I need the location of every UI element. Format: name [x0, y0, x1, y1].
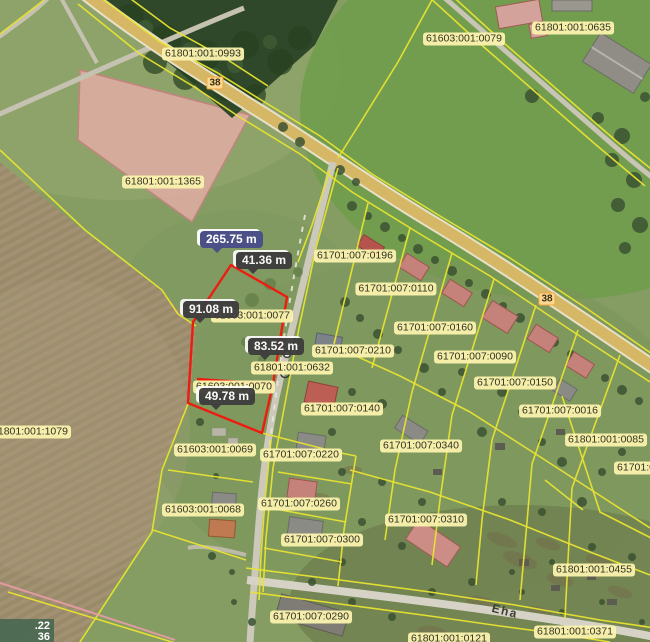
labels-layer: 61801:001:099361603:001:007961801:001:06…: [0, 0, 650, 642]
parcel-label: 61701:007:0110: [355, 283, 436, 296]
measurement-label-segment: 49.78 m: [199, 388, 255, 405]
parcel-label: 61701:007:0016: [519, 405, 601, 418]
parcel-label: 61801:001:1079: [0, 426, 71, 439]
map-canvas[interactable]: 61801:001:099361603:001:007961801:001:06…: [0, 0, 650, 642]
coordinate-readout: .22 36: [0, 619, 54, 642]
parcel-label: 61701:007:0150: [474, 377, 556, 390]
parcel-label: 61801:001:0085: [565, 434, 647, 447]
parcel-label: 61701:007:0310: [385, 514, 467, 527]
parcel-label: 61701:007:0300: [281, 534, 363, 547]
parcel-label: 61701:007:0196: [314, 250, 396, 263]
parcel-label: 61701:0: [614, 462, 650, 475]
parcel-label: 61701:007:0340: [380, 440, 462, 453]
parcel-label: 61801:001:1365: [122, 176, 204, 189]
measurement-label-segment: 91.08 m: [183, 301, 239, 318]
parcel-label: 61701:007:0090: [434, 351, 516, 364]
road-number-badge: 38: [538, 293, 555, 306]
parcel-label: 61801:001:0635: [532, 22, 614, 35]
parcel-label: 61603:001:0069: [174, 444, 256, 457]
coordinate-line-2: 36: [0, 632, 50, 642]
street-name-label: Eha: [490, 601, 519, 621]
parcel-label: 61801:001:0121: [408, 633, 490, 642]
parcel-label: 61801:001:0993: [162, 48, 244, 61]
road-number-badge: 38: [206, 77, 223, 90]
parcel-label: 61801:001:0371: [534, 626, 616, 639]
measurement-label-segment: 83.52 m: [248, 338, 304, 355]
parcel-label: 61701:007:0260: [258, 498, 340, 511]
parcel-label: 61701:007:0210: [312, 345, 394, 358]
parcel-label: 61603:001:0079: [423, 33, 505, 46]
parcel-label: 61701:007:0220: [260, 449, 342, 462]
parcel-label: 61701:007:0160: [394, 322, 476, 335]
parcel-label: 61801:001:0455: [553, 564, 635, 577]
parcel-label: 61701:007:0290: [270, 611, 352, 624]
parcel-label: 61603:001:0068: [162, 504, 244, 517]
parcel-label: 61701:007:0140: [301, 403, 383, 416]
measurement-label-segment: 41.36 m: [236, 252, 292, 269]
measurement-label-total: 265.75 m: [200, 231, 263, 248]
